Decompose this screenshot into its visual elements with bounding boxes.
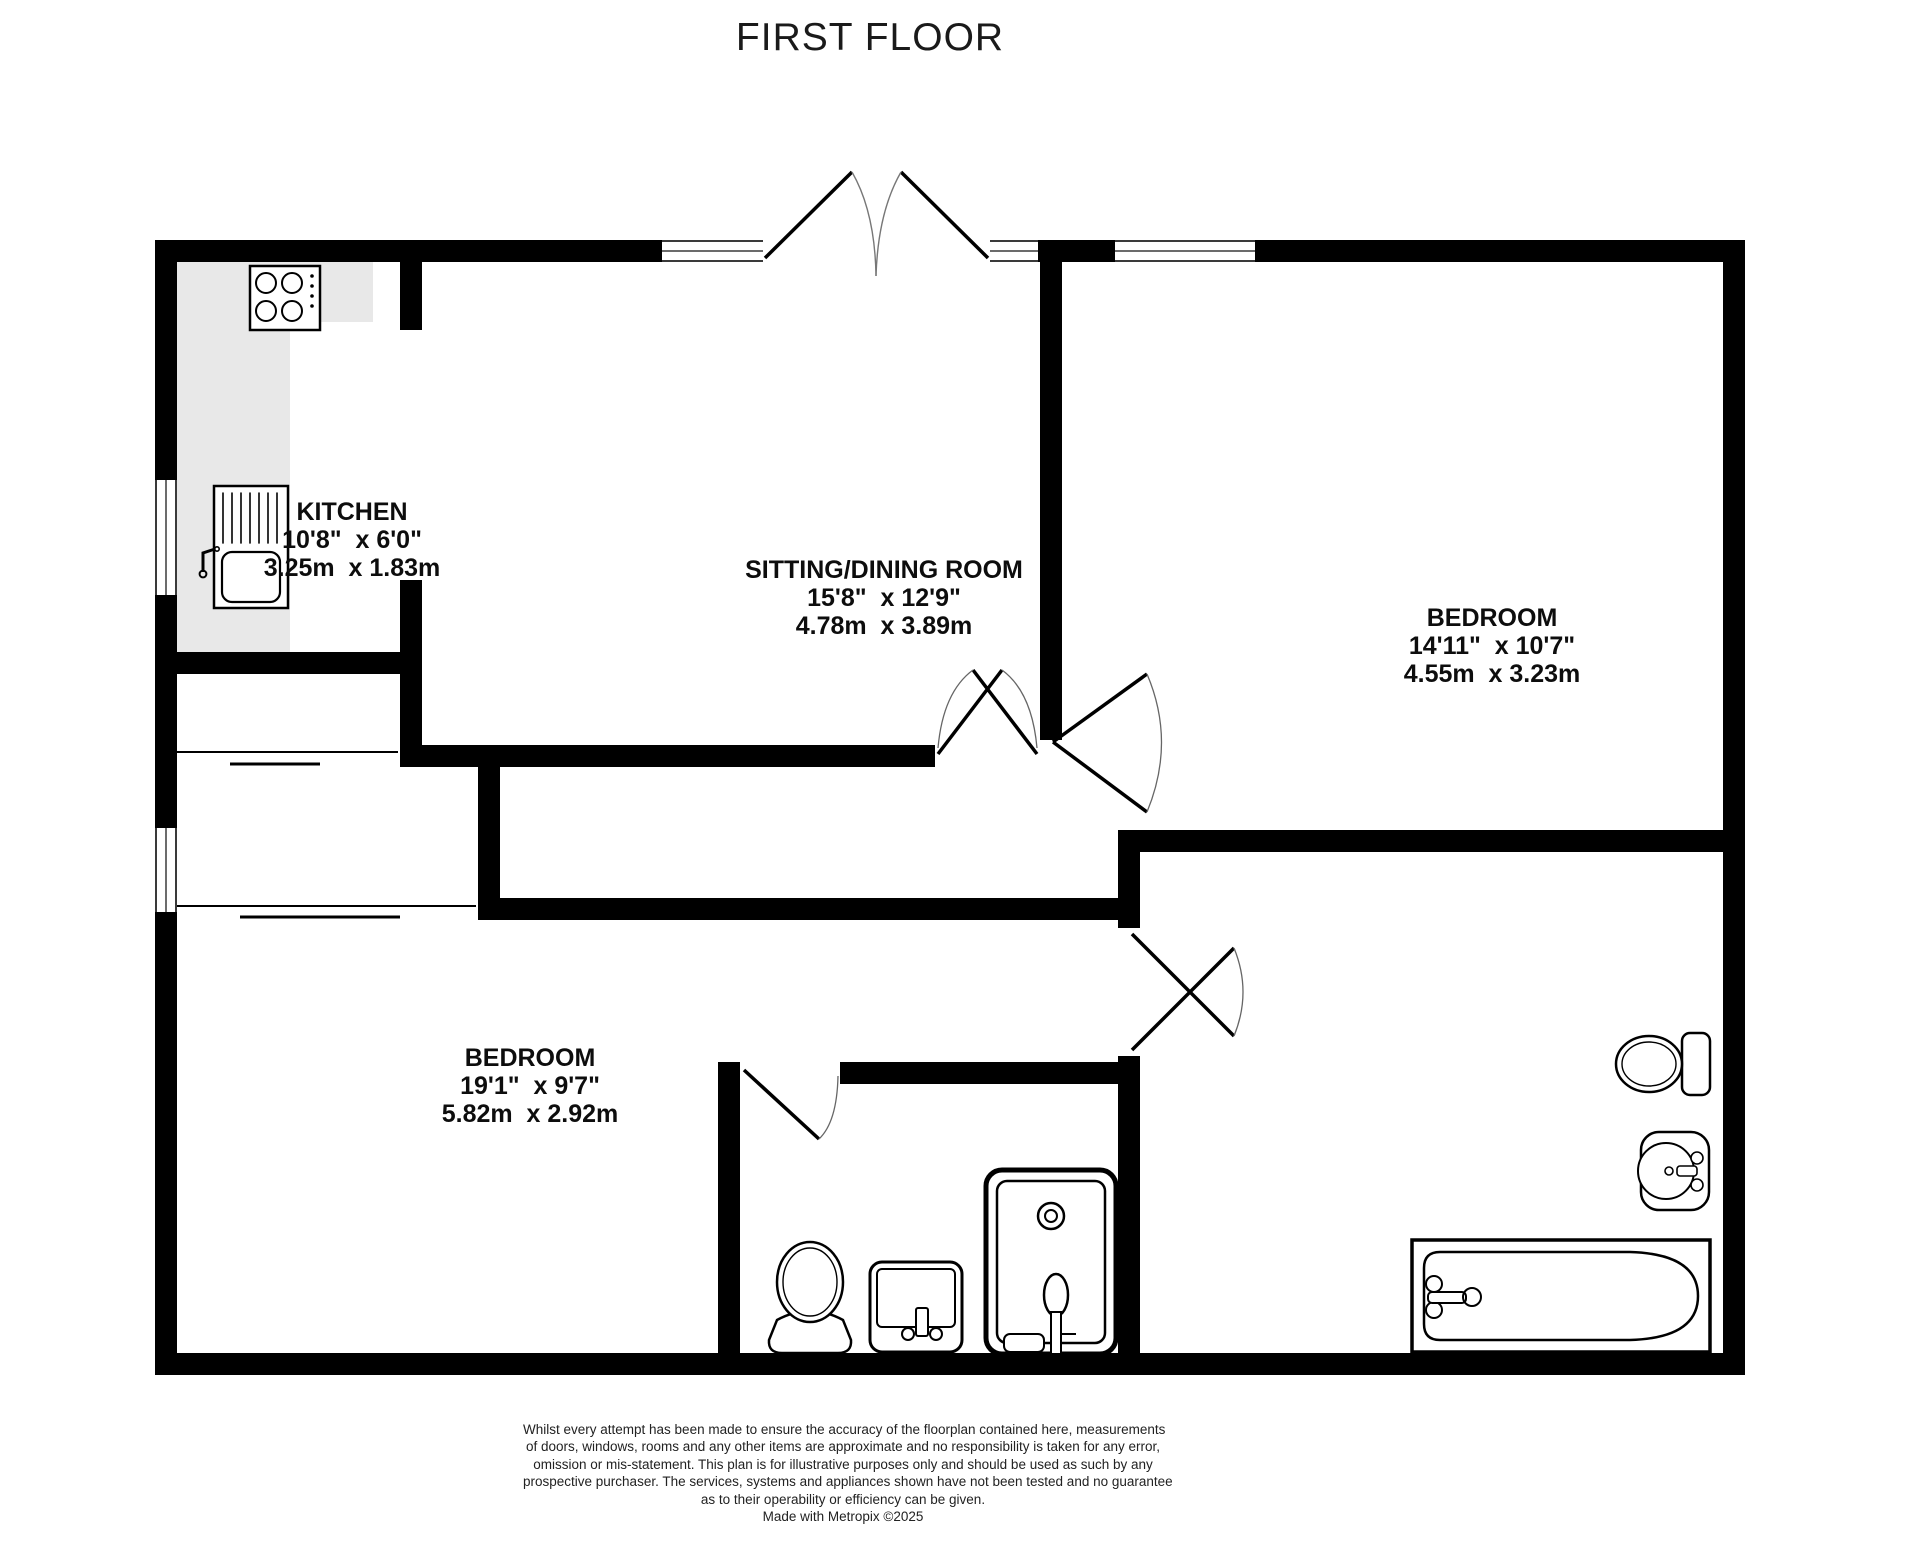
disclaimer: Whilst every attempt has been made to en…	[523, 1421, 1163, 1525]
bathtub-icon	[1412, 1240, 1710, 1352]
wall	[1118, 830, 1140, 928]
shower-icon	[986, 1170, 1116, 1354]
room-name: BEDROOM	[442, 1044, 619, 1072]
room-label-bedroom-right: BEDROOM 14'11" x 10'7" 4.55m x 3.23m	[1404, 604, 1581, 688]
room-name: BEDROOM	[1404, 604, 1581, 632]
window-icon	[1115, 240, 1255, 262]
washbasin-icon	[1638, 1132, 1709, 1210]
room-label-bedroom-lower: BEDROOM 19'1" x 9'7" 5.82m x 2.92m	[442, 1044, 619, 1128]
wall	[155, 912, 177, 1375]
wall	[400, 262, 422, 330]
room-name: SITTING/DINING ROOM	[745, 556, 1023, 584]
disclaimer-line: as to their operability or efficiency ca…	[523, 1491, 1163, 1508]
disclaimer-line: omission or mis-statement. This plan is …	[523, 1456, 1163, 1473]
wall	[1038, 240, 1115, 262]
disclaimer-line: Whilst every attempt has been made to en…	[523, 1421, 1163, 1438]
wall	[1723, 240, 1745, 1375]
wall	[478, 767, 500, 910]
door-swing-icon	[1053, 674, 1162, 812]
room-dims-metric: 3.25m x 1.83m	[264, 554, 441, 582]
wall	[155, 240, 662, 262]
french-doors-icon	[765, 172, 988, 276]
wall	[155, 1353, 1745, 1375]
wall	[155, 240, 177, 480]
room-dims-imperial: 14'11" x 10'7"	[1404, 632, 1581, 660]
wall	[1118, 1056, 1140, 1353]
toilet-icon	[769, 1242, 851, 1353]
wall	[155, 652, 422, 674]
room-dims-imperial: 15'8" x 12'9"	[745, 584, 1023, 612]
window-icon	[662, 240, 763, 262]
window-icon	[155, 480, 177, 595]
floorplan-canvas: FIRST FLOOR	[0, 0, 1920, 1564]
room-dims-imperial: 10'8" x 6'0"	[264, 526, 441, 554]
door-swing-icon	[1132, 934, 1243, 1050]
washbasin-icon	[870, 1262, 962, 1352]
disclaimer-line: prospective purchaser. The services, sys…	[523, 1473, 1163, 1490]
room-dims-imperial: 19'1" x 9'7"	[442, 1072, 619, 1100]
window-icon	[990, 240, 1038, 262]
disclaimer-line: Made with Metropix ©2025	[523, 1508, 1163, 1525]
door-swing-icon	[938, 670, 1037, 754]
wall	[718, 1062, 740, 1353]
floorplan-drawing	[0, 0, 1920, 1564]
window-icon	[155, 828, 177, 912]
wall	[1255, 240, 1745, 262]
room-dims-metric: 5.82m x 2.92m	[442, 1100, 619, 1128]
wall	[400, 745, 935, 767]
walls	[155, 240, 1745, 1375]
wall	[155, 595, 177, 828]
room-dims-metric: 4.55m x 3.23m	[1404, 660, 1581, 688]
wall	[1140, 830, 1723, 852]
wall	[478, 898, 1118, 920]
room-dims-metric: 4.78m x 3.89m	[745, 612, 1023, 640]
opening-markers	[177, 752, 476, 917]
room-name: KITCHEN	[264, 498, 441, 526]
room-label-sitting-dining: SITTING/DINING ROOM 15'8" x 12'9" 4.78m …	[745, 556, 1023, 640]
hob-icon	[250, 266, 320, 330]
wall	[840, 1062, 1140, 1084]
room-label-kitchen: KITCHEN 10'8" x 6'0" 3.25m x 1.83m	[264, 498, 441, 582]
door-swing-icon	[744, 1070, 838, 1139]
toilet-icon	[1616, 1033, 1710, 1095]
wall	[1040, 262, 1062, 740]
disclaimer-line: of doors, windows, rooms and any other i…	[523, 1438, 1163, 1455]
